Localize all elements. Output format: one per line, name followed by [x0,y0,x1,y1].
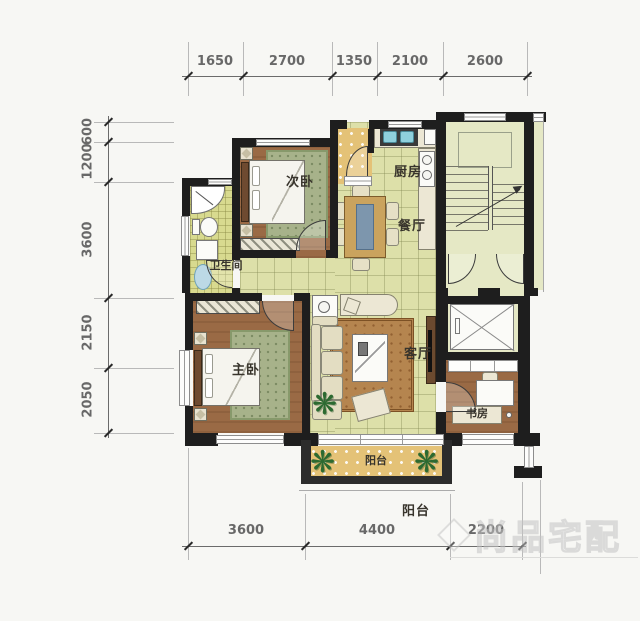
wall [330,120,338,258]
knob-icon [506,412,512,418]
wall [240,250,296,258]
nightstand [240,147,253,160]
pillow [252,190,260,210]
sofa-cushion [321,326,343,350]
floorplan-canvas: 1650 2700 1350 2100 2600 600 1200 3600 2… [0,0,640,621]
bay-window [179,350,190,406]
lightwell-strip [534,122,543,290]
cabinet-detail [318,301,330,313]
room-label-dining: 餐厅 [390,220,434,234]
dim-label-top: 2700 [261,55,313,68]
watermark: 尚品宅配 [442,510,622,559]
window [256,139,310,146]
sofa-cushion [321,351,343,375]
wall [478,288,500,296]
dim-label-top: 1650 [189,55,241,68]
wall [440,296,530,304]
window [181,216,189,256]
window [208,179,232,185]
wall [185,293,262,301]
dim-label-bottom: 4400 [351,524,403,537]
dim-label-top: 2100 [384,55,436,68]
window [464,113,506,121]
watermark-text: 尚品宅配 [474,510,622,559]
toilet-tank [192,219,200,235]
wall [440,352,530,360]
wall [302,293,310,436]
room-label-living: 客厅 [396,348,440,362]
wall [326,250,338,258]
window-mullion [402,435,403,444]
stair-rail [488,166,493,230]
nightstand [194,408,207,421]
room-label-balcony: 阳台 [354,455,398,467]
table-runner [356,204,374,250]
elevator-door-slot [455,318,460,334]
pillow [205,354,213,374]
wall [232,147,240,260]
dining-chair [352,258,370,271]
bookshelf [448,360,518,372]
room-label-master-bedroom: 主卧 [224,364,268,378]
desk [476,380,514,406]
room-label-bathroom: 卫生间 [198,260,254,272]
wall [185,433,218,446]
dim-label-left: 2050 [82,374,95,426]
dim-ext-line [332,42,333,96]
balcony-annotation: 阳台 [394,505,438,519]
plant-icon [310,448,335,478]
dim-label-top: 1350 [328,55,380,68]
window [533,113,544,122]
wall [518,296,530,436]
wall [368,129,374,153]
burner-icon [422,155,432,165]
bed-headboard [241,162,249,222]
window [388,121,422,128]
dim-ext-line [377,42,378,96]
wall [436,120,446,292]
watermark-cube-icon [437,518,471,552]
dim-ext-line [305,494,306,560]
shelf-divider [494,361,495,371]
wall [524,112,534,296]
room-label-kitchen: 厨房 [386,166,430,180]
dim-label-top: 2600 [459,55,511,68]
building-edge-line [543,112,544,292]
dim-label-left: 2150 [82,307,95,359]
room-label-study: 书房 [455,408,499,420]
dim-ext-line [443,42,444,96]
bed-headboard [194,350,202,406]
window [216,435,284,444]
dim-line-top [182,76,532,77]
window-mullion [360,435,361,444]
plant-icon [414,448,439,478]
dim-label-left: 1200 [82,136,95,188]
washer-icon [196,240,218,260]
entry-threshold [344,176,372,186]
dim-ext-line [243,42,244,96]
sink-basin-icon [383,131,397,143]
dim-line-left [108,116,109,438]
room-label-secondary-bedroom: 次卧 [278,176,322,190]
wall [436,292,446,382]
dim-ext-line [188,42,189,96]
table-item [358,342,368,356]
shelf-divider [470,361,471,371]
wall [182,178,190,216]
dim-ext-line [527,42,528,96]
hood-icon [424,129,436,145]
wall [436,412,446,436]
pillow [205,378,213,398]
balcony-wall [301,476,452,484]
nightstand [194,332,207,345]
balcony-outer-line [299,490,455,491]
wall [528,288,538,296]
toilet-icon [200,217,218,237]
window [462,434,514,445]
dining-chair [386,202,399,220]
wall [185,293,193,350]
wall [182,256,190,293]
stair-landing-outline [458,132,512,168]
hallway-floor [240,255,335,295]
window [524,446,534,468]
wall [330,120,347,129]
balcony-door-window [318,434,444,445]
stair-treads [446,166,488,232]
pillow [252,166,260,186]
wall [185,406,193,436]
nightstand [240,224,253,237]
dim-label-bottom: 3600 [220,524,272,537]
sink-basin-icon [400,131,414,143]
dim-label-left: 3600 [82,214,95,266]
plant-icon [312,390,337,420]
